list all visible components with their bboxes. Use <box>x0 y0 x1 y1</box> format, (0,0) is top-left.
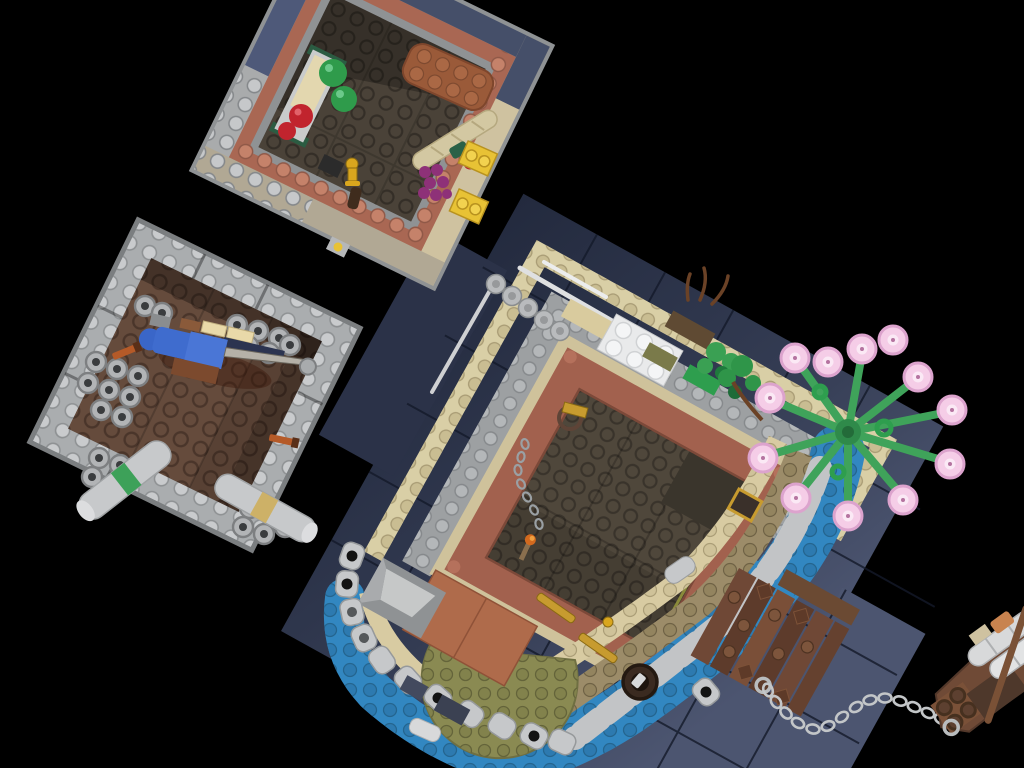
black-well <box>623 665 657 699</box>
render-viewport <box>0 0 1024 768</box>
lego-render <box>0 0 1024 768</box>
